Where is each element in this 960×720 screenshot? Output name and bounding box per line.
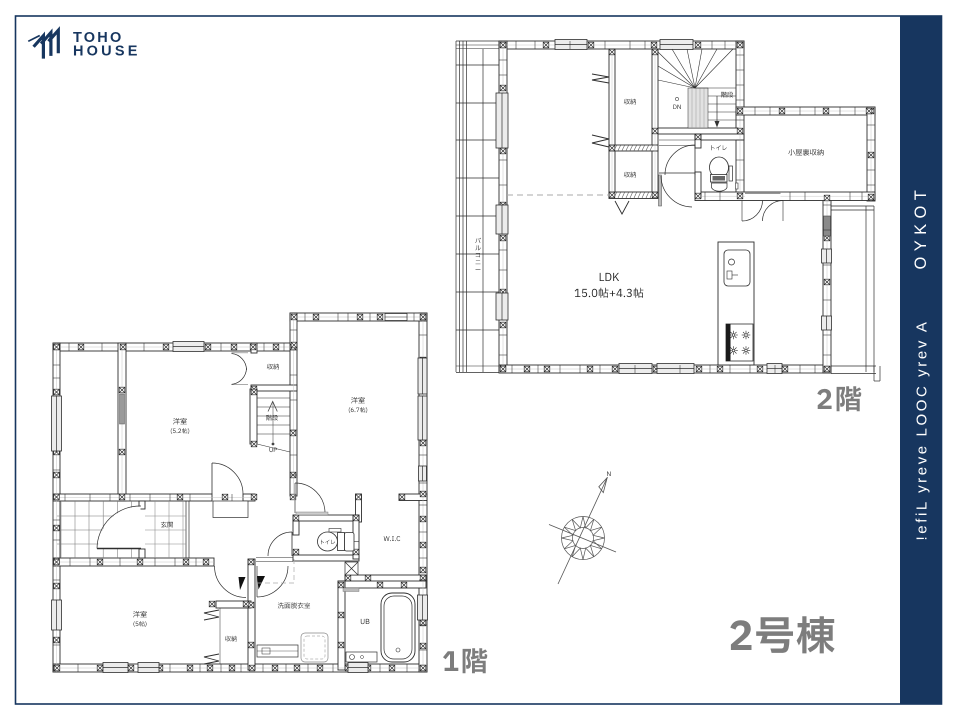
svg-text:N: N [607, 471, 612, 478]
svg-text:OYKOT: OYKOT [912, 185, 930, 270]
svg-text:HOUSE: HOUSE [73, 44, 141, 60]
svg-text:!efiL yreve LOOC yrev A: !efiL yreve LOOC yrev A [913, 320, 930, 541]
